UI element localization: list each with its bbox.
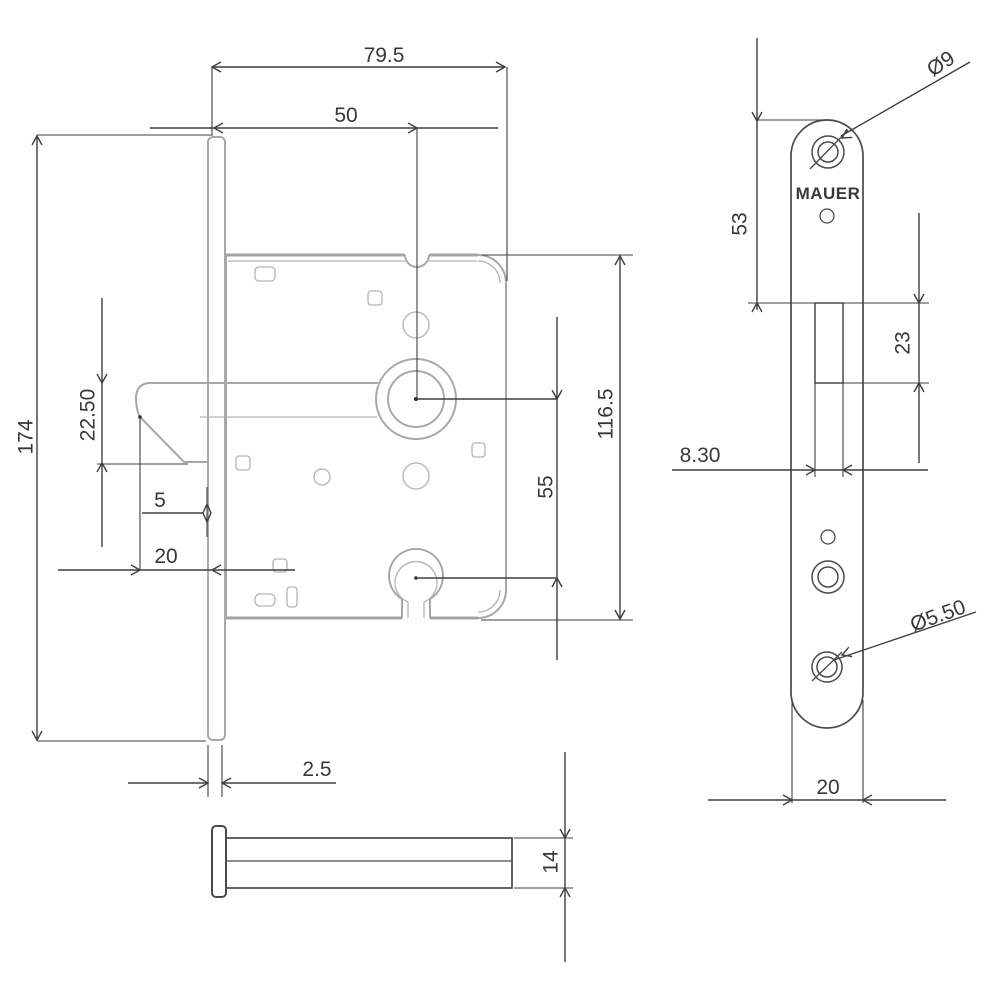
latch-bolt [136, 383, 378, 462]
dim-cutout-width: 8.30 [680, 444, 721, 467]
bottom-screw-hole [812, 652, 842, 682]
faceplate-outline [791, 120, 863, 728]
dim-top-hole-diameter: Ø9 [923, 47, 959, 82]
dim-total-width: 79.5 [364, 44, 405, 67]
lock-technical-drawing: 79.5 50 174 22.50 5 20 [0, 0, 1000, 1000]
case-cutouts [236, 267, 485, 607]
dim-spindle-to-key: 55 [535, 475, 558, 498]
lock-case-front-view [136, 137, 506, 740]
small-hole-lower [821, 530, 835, 544]
dim-bottom-hole-diameter: Ø5.50 [907, 595, 969, 636]
dim-latch-offset: 5 [154, 489, 166, 512]
dim-plate-width: 20 [816, 776, 839, 799]
main-view-dimensions: 79.5 50 174 22.50 5 20 [15, 44, 634, 797]
dim-cutout-height: 23 [892, 331, 915, 354]
small-hole-upper [820, 209, 834, 223]
center-hole [812, 561, 844, 593]
side-case [226, 838, 512, 888]
brand-text: MAUER [796, 184, 861, 203]
top-hole-leader [841, 62, 970, 136]
dim-front-depth: 20 [154, 545, 177, 568]
dim-total-height: 174 [15, 419, 38, 454]
drawing-canvas: 79.5 50 174 22.50 5 20 [0, 0, 1000, 1000]
dim-top-to-cutout: 53 [729, 212, 752, 235]
dim-faceplate-thickness: 2.5 [302, 758, 331, 781]
case-body-outline [226, 255, 506, 618]
faceplate-view: Ø9 MAUER Ø5.50 53 [672, 38, 976, 805]
keyhole [389, 549, 443, 618]
side-faceplate [212, 826, 226, 897]
faceplate-strip [208, 137, 225, 740]
dim-backset: 50 [334, 104, 357, 127]
dim-case-thickness: 14 [540, 850, 563, 874]
latch-cutout [815, 303, 843, 383]
dim-latch-height: 22.50 [77, 389, 100, 442]
dim-case-height: 116.5 [595, 389, 618, 440]
